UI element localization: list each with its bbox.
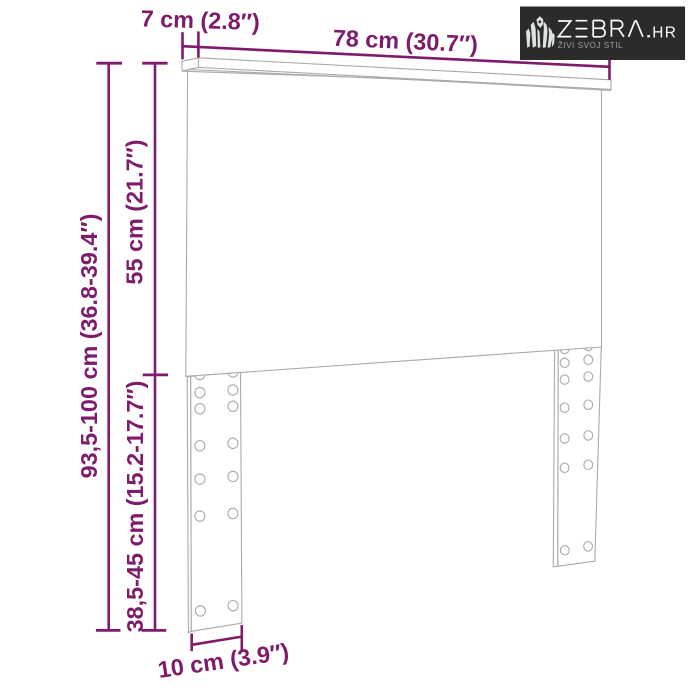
- svg-text:38,5-45 cm (15.2-17.7″): 38,5-45 cm (15.2-17.7″): [122, 381, 148, 633]
- svg-text:55 cm (21.7″): 55 cm (21.7″): [122, 139, 148, 284]
- svg-text:7 cm (2.8″): 7 cm (2.8″): [140, 5, 260, 35]
- svg-text:93,5-100 cm (36.8-39.4″): 93,5-100 cm (36.8-39.4″): [76, 214, 102, 479]
- svg-text:HR: HR: [652, 25, 677, 42]
- svg-text:ŽIVI SVOJ STIL: ŽIVI SVOJ STIL: [558, 40, 623, 50]
